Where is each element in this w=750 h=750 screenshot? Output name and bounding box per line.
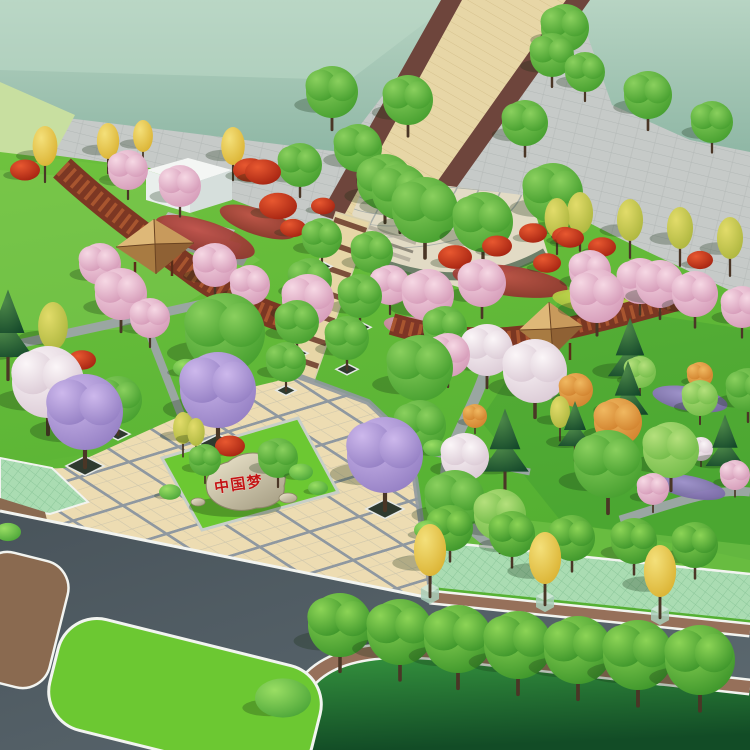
accent-rock-east (279, 493, 297, 503)
scene-canvas: 中国梦 (0, 0, 750, 750)
accent-rock-west (191, 498, 205, 506)
landscape-rendering: 中国梦 (0, 0, 750, 750)
